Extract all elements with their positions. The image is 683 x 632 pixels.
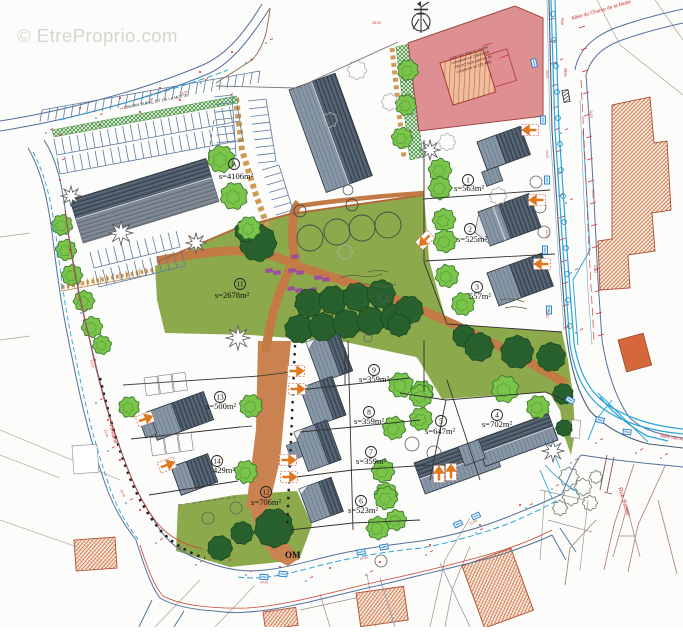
svg-text:s=359m²: s=359m² [356,456,386,466]
svg-text:Rue: Rue [560,18,565,26]
svg-text:557m²: 557m² [469,291,491,301]
svg-text:OM: OM [285,550,301,560]
svg-text:s=359m²: s=359m² [359,374,389,384]
svg-text:2: 2 [468,225,472,234]
svg-text:24.05: 24.05 [545,310,549,318]
svg-text:24.05: 24.05 [545,230,549,238]
svg-text:s=4106m²: s=4106m² [219,171,254,181]
svg-text:5: 5 [439,417,443,426]
svg-text:12: 12 [262,488,270,497]
svg-text:s=525m²: s=525m² [457,234,487,244]
svg-text:Allée: Allée [563,68,568,78]
svg-text:24.05: 24.05 [545,70,549,78]
svg-text:11: 11 [236,280,243,289]
svg-text:24.05: 24.05 [593,265,597,273]
svg-text:24.05: 24.05 [545,150,549,158]
svg-text:s=359m²: s=359m² [354,416,384,426]
svg-text:s=647m²: s=647m² [425,426,455,436]
svg-text:28.09: 28.09 [372,21,381,25]
svg-text:A: A [231,160,237,169]
svg-text:24.05: 24.05 [591,190,595,198]
svg-text:s=702m²: s=702m² [482,419,512,429]
svg-text:s=2678m²: s=2678m² [215,290,250,300]
svg-text:24.05: 24.05 [260,580,269,585]
svg-text:s=500m²: s=500m² [206,401,236,411]
svg-text:24.05: 24.05 [589,110,593,118]
svg-text:s=523m²: s=523m² [348,505,378,515]
svg-text:s=563m²: s=563m² [454,183,484,193]
svg-text:429m²: 429m² [213,465,235,475]
svg-text:© EtreProprio.com: © EtreProprio.com [17,25,178,46]
svg-text:s=706m²: s=706m² [251,497,281,507]
